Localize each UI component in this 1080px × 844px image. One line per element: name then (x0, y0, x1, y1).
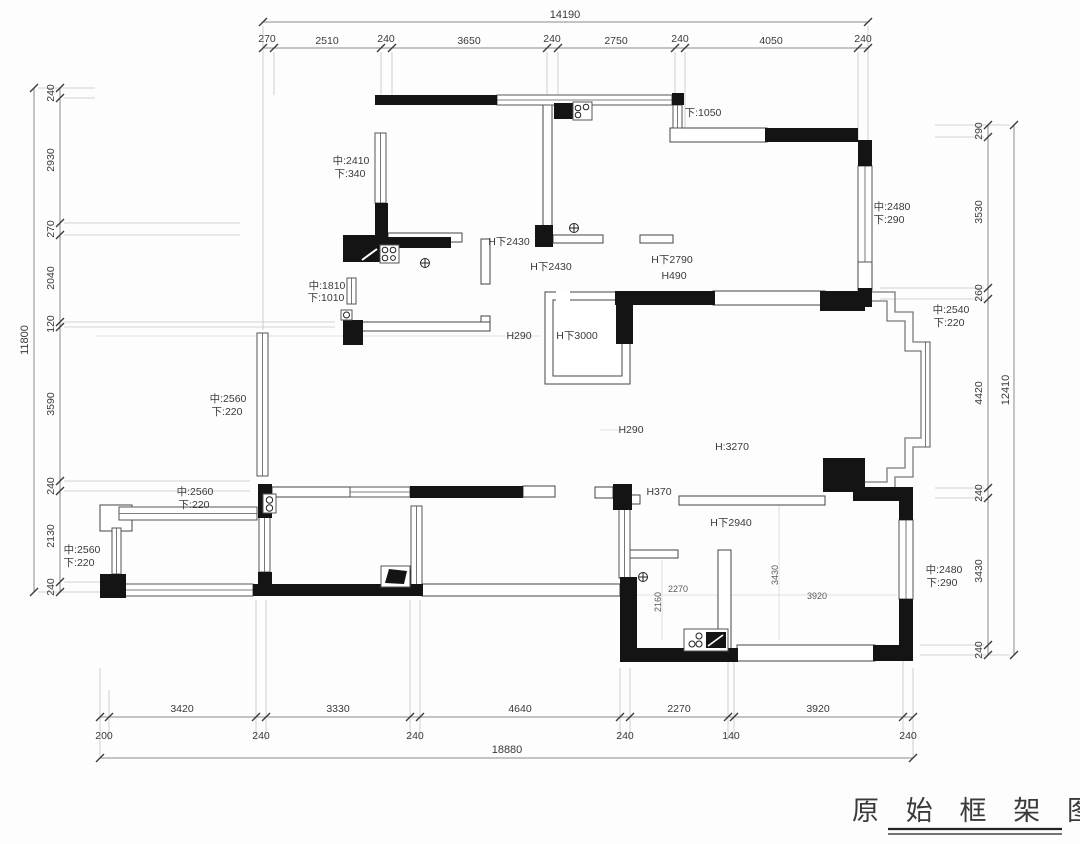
dim-top-4: 240 (543, 33, 561, 45)
dim-bseg-3: 2270 (667, 703, 691, 715)
brick-walls (100, 103, 875, 661)
interior-dim-3: 3920 (807, 591, 827, 601)
dim-top-total: 14190 (550, 9, 581, 21)
dim-right-1: 3530 (973, 200, 985, 224)
dim-right-total: 12410 (1000, 375, 1012, 406)
annotation-22: H下2940 (710, 517, 752, 529)
annotation-19: 中:2560 (177, 485, 214, 498)
washer-counter-icon (684, 629, 728, 651)
dim-bseg-1: 3330 (326, 703, 350, 715)
annotation-16: 下:220 (212, 406, 243, 418)
window (619, 508, 630, 578)
annotation-10: 下:1010 (308, 292, 345, 304)
annotation-9: 中:1810 (309, 279, 346, 292)
dim-top-3: 3650 (457, 35, 481, 47)
dim-left-8: 240 (45, 578, 57, 596)
dim-top-5: 2750 (604, 35, 628, 47)
interior-dim-2: 3430 (770, 565, 780, 585)
dimension-texts: 14190 270 2510 240 3650 240 2750 240 405… (19, 9, 1012, 756)
dim-top-1: 2510 (315, 35, 339, 47)
window (112, 528, 121, 574)
window (673, 105, 682, 128)
annotation-25: 中:2480 (926, 563, 963, 576)
gas-stove-icon (359, 245, 399, 263)
floor-drain-icon (421, 259, 430, 268)
annotation-18: H:3270 (715, 441, 749, 453)
dim-left-7: 2130 (45, 524, 57, 548)
window (375, 133, 386, 203)
window (257, 333, 268, 476)
annotation-2: 下:1050 (685, 107, 722, 119)
dim-bwall-1: 240 (252, 730, 270, 742)
dim-right-4: 240 (973, 484, 985, 502)
dim-top-2: 240 (377, 33, 395, 45)
bay-window (865, 292, 930, 490)
dim-top-6: 240 (671, 33, 689, 45)
dim-left-3: 2040 (45, 266, 57, 290)
dim-right-6: 240 (973, 641, 985, 659)
annotation-23: 中:2560 (64, 543, 101, 556)
annotation-texts: 中:2410 下:340 下:1050 中:2480 下:290 H下2430 … (64, 107, 970, 612)
floorplan-drawing: 14190 270 2510 240 3650 240 2750 240 405… (0, 0, 1080, 844)
dim-left-total: 11800 (19, 325, 31, 355)
annotation-17: H290 (618, 424, 643, 436)
dim-bwall-0: 200 (95, 730, 113, 742)
window (125, 584, 253, 596)
annotation-12: H下3000 (556, 330, 598, 342)
floorplan-page: 14190 270 2510 240 3650 240 2750 240 405… (0, 0, 1080, 844)
dim-top-7: 4050 (759, 35, 783, 47)
dim-bseg-0: 3420 (170, 703, 194, 715)
annotation-3: 中:2480 (874, 200, 911, 213)
annotation-20: 下:220 (179, 499, 210, 511)
annotation-11: H290 (506, 330, 531, 342)
window (259, 516, 270, 572)
dim-right-2: 260 (973, 284, 985, 302)
interior-dim-0: 2270 (668, 584, 688, 594)
interior-dim-1: 2160 (653, 592, 663, 612)
window (411, 506, 422, 588)
tv-icon (381, 566, 410, 587)
dim-bwall-5: 240 (899, 730, 917, 742)
dim-left-0: 240 (45, 84, 57, 102)
annotation-0: 中:2410 (333, 154, 370, 167)
windows (112, 95, 913, 599)
window (350, 487, 410, 497)
annotation-15: 中:2560 (210, 392, 247, 405)
annotation-4: 下:290 (874, 214, 905, 226)
annotation-26: 下:290 (927, 577, 958, 589)
dim-bwall-2: 240 (406, 730, 424, 742)
dim-right-3: 4420 (973, 381, 985, 405)
window (858, 166, 872, 262)
drawing-title: 原 始 框 架 图 (852, 796, 1080, 826)
dim-bwall-4: 140 (722, 730, 740, 742)
dim-left-6: 240 (45, 477, 57, 495)
annotation-21: H370 (646, 486, 671, 498)
gas-stove-icon (554, 102, 592, 120)
dim-bseg-2: 4640 (508, 703, 532, 715)
dim-bottom-total: 18880 (492, 744, 523, 756)
annotation-24: 下:220 (64, 557, 95, 569)
annotation-6: H下2430 (530, 261, 572, 273)
floor-drain-icon (570, 224, 579, 233)
dim-top-8: 240 (854, 33, 872, 45)
annotation-1: 下:340 (335, 168, 366, 180)
annotation-7: H下2790 (651, 254, 693, 266)
floor-drain-icon (639, 573, 648, 582)
dim-bseg-4: 3920 (806, 703, 830, 715)
annotation-8: H490 (661, 270, 686, 282)
dim-right-0: 290 (973, 122, 985, 140)
concrete-walls (100, 93, 913, 662)
doorbell-icon (341, 310, 352, 320)
window (899, 520, 913, 599)
title-block: 原 始 框 架 图 (852, 796, 1080, 834)
dim-left-4: 120 (45, 315, 57, 333)
dim-right-5: 3430 (973, 559, 985, 583)
dim-bwall-3: 240 (616, 730, 634, 742)
dim-left-2: 270 (45, 220, 57, 238)
annotation-13: 中:2540 (933, 303, 970, 316)
dim-left-5: 3590 (45, 392, 57, 416)
annotation-5: H下2430 (488, 236, 530, 248)
dim-top-0: 270 (258, 33, 276, 45)
dim-left-1: 2930 (45, 148, 57, 172)
fixture-icons (263, 102, 728, 651)
double-socket-icon (263, 494, 276, 513)
annotation-14: 下:220 (934, 317, 965, 329)
window (347, 278, 356, 304)
